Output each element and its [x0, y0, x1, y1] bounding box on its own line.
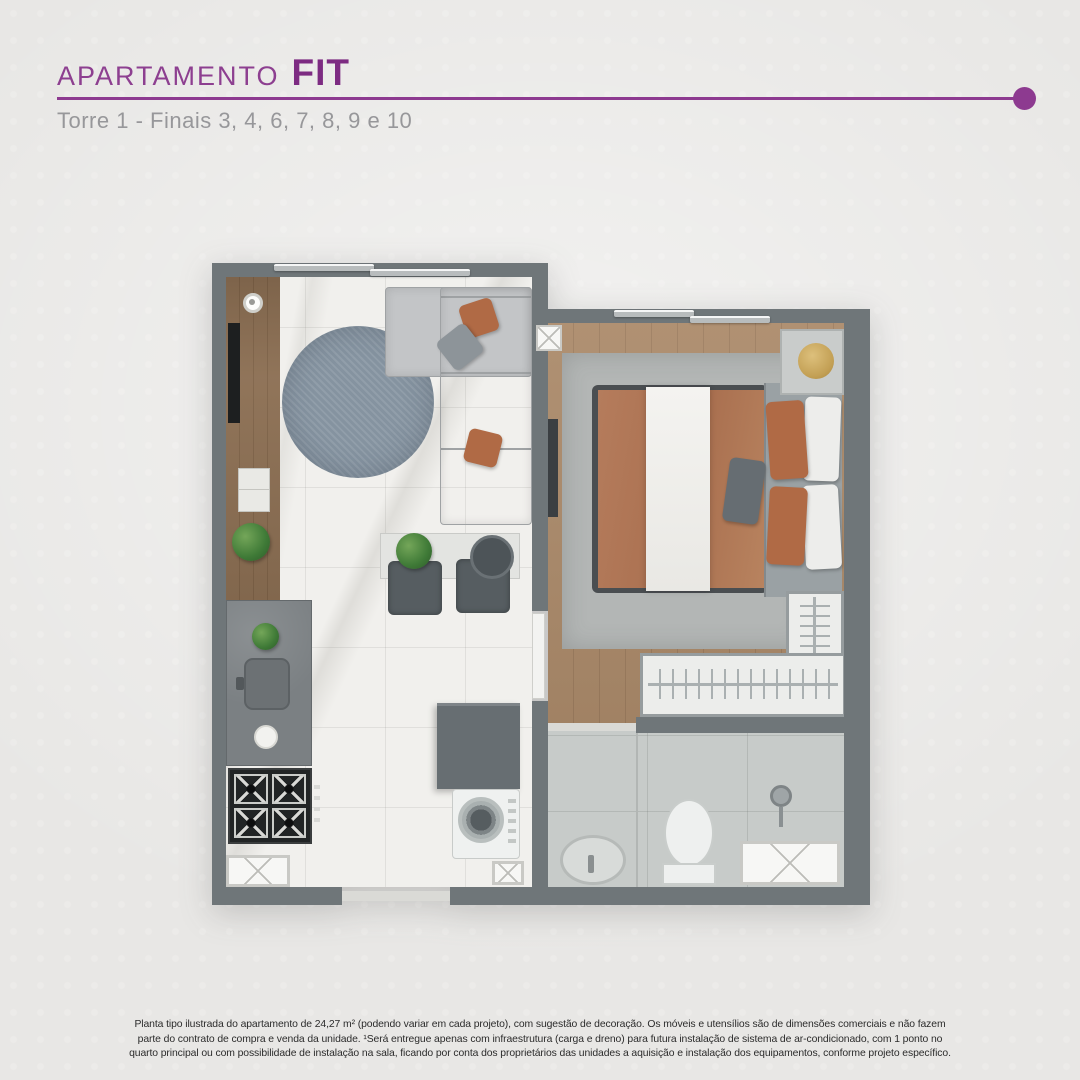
burner-icon — [272, 808, 306, 838]
pillow-white-2 — [802, 484, 842, 570]
title-prefix: APARTAMENTO — [57, 61, 280, 92]
title-divider-line — [57, 97, 1014, 100]
shower-arm — [779, 807, 783, 827]
kitchen-faucet — [236, 677, 244, 690]
entry-threshold — [342, 891, 450, 901]
burner-icon — [234, 774, 268, 804]
dining-chair-1 — [388, 561, 442, 615]
wall-bottom-right — [450, 887, 870, 905]
washer-drum — [458, 797, 504, 843]
wall-cabinet-divider — [238, 489, 270, 490]
header: APARTAMENTO FIT — [57, 52, 350, 94]
brass-tray — [798, 343, 834, 379]
shower-icon — [770, 785, 792, 807]
wall-divider-top — [532, 263, 548, 611]
plant-dining — [396, 533, 432, 569]
wall-cabinet — [238, 468, 270, 512]
disclaimer-line-2: parte do contrato de compra e venda da u… — [0, 1033, 1080, 1048]
plant-living — [232, 523, 270, 561]
washer-controls — [508, 799, 516, 849]
wardrobe-rod-h — [648, 683, 838, 686]
wall-bathroom — [636, 717, 844, 733]
wall-left — [212, 263, 226, 905]
shower-box — [740, 841, 840, 885]
cooktop-knobs — [314, 785, 320, 829]
tower-subtitle: Torre 1 - Finais 3, 4, 6, 7, 8, 9 e 10 — [57, 108, 412, 134]
poster-canvas: APARTAMENTO FIT Torre 1 - Finais 3, 4, 6… — [0, 0, 1080, 1080]
kitchen-sink — [244, 658, 290, 710]
plant-counter — [252, 623, 279, 650]
sink-faucet — [588, 855, 594, 873]
legal-disclaimer: Planta tipo ilustrada do apartamento de … — [0, 1018, 1080, 1062]
disclaimer-line-1: Planta tipo ilustrada do apartamento de … — [0, 1018, 1080, 1033]
title-emphasis: FIT — [292, 52, 350, 94]
pillow-terracotta-2 — [766, 486, 808, 566]
burner-icon — [234, 808, 268, 838]
bedroom-window-pane-1 — [614, 310, 694, 317]
refrigerator — [437, 703, 520, 789]
ceiling-speaker-center — [249, 299, 255, 305]
burner-icon — [272, 774, 306, 804]
floor-plan — [212, 263, 870, 905]
wall-bottom-left — [212, 887, 342, 905]
living-window-pane-2 — [370, 269, 470, 276]
door-leaf-bedroom — [532, 613, 545, 699]
bathroom-grout-line — [636, 731, 638, 887]
wall-right — [844, 309, 870, 905]
toilet-tank — [662, 863, 716, 885]
service-shaft-box — [492, 861, 524, 885]
bedroom-window-pane-2 — [690, 316, 770, 323]
page-title: APARTAMENTO FIT — [57, 52, 350, 94]
side-stool — [470, 535, 514, 579]
disclaimer-line-3: quarto principal ou com possibilidade de… — [0, 1047, 1080, 1062]
wall-divider-bottom — [532, 701, 548, 887]
plate — [254, 725, 278, 749]
bed-runner — [646, 387, 710, 591]
pillow-white-1 — [803, 396, 842, 481]
living-window-pane-1 — [274, 264, 374, 271]
tv-panel-bedroom — [548, 419, 558, 517]
bedroom-shaft-box — [536, 325, 562, 351]
kitchen-shaft-box — [226, 855, 290, 887]
pillow-terracotta-1 — [765, 400, 808, 480]
divider-end-dot — [1013, 87, 1036, 110]
toilet-bowl — [664, 799, 714, 867]
bathroom-threshold — [548, 723, 636, 731]
tv-panel-living — [228, 323, 240, 423]
